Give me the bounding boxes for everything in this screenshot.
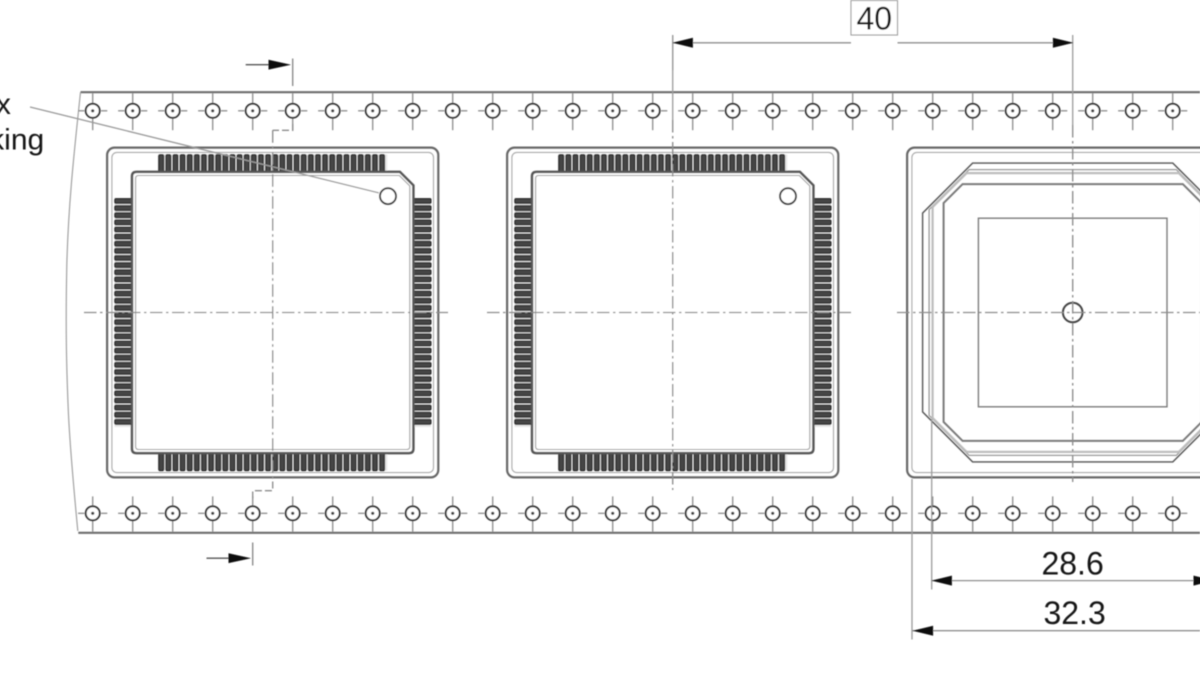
svg-text:32.3: 32.3 bbox=[1043, 595, 1105, 631]
svg-text:40: 40 bbox=[857, 0, 893, 36]
svg-text:marking: marking bbox=[0, 124, 44, 157]
svg-text:28.6: 28.6 bbox=[1041, 546, 1103, 582]
svg-text:Index: Index bbox=[0, 88, 11, 121]
